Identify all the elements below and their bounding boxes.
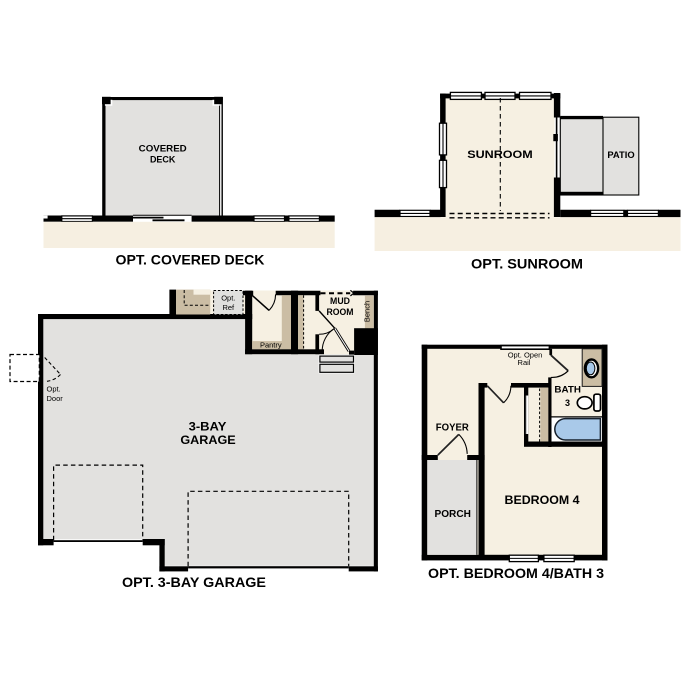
svg-text:GARAGE: GARAGE: [180, 433, 235, 447]
svg-text:PATIO: PATIO: [607, 150, 634, 160]
svg-text:SUNROOM: SUNROOM: [467, 149, 533, 161]
svg-text:OPT. BEDROOM 4/BATH 3: OPT. BEDROOM 4/BATH 3: [428, 565, 604, 581]
svg-text:Ref: Ref: [222, 303, 235, 312]
svg-text:Pantry: Pantry: [260, 341, 282, 350]
svg-text:OPT. COVERED DECK: OPT. COVERED DECK: [116, 251, 265, 267]
svg-text:COVERED: COVERED: [139, 143, 187, 154]
svg-text:Door: Door: [47, 394, 64, 403]
svg-text:FOYER: FOYER: [436, 421, 469, 433]
svg-text:BEDROOM 4: BEDROOM 4: [505, 493, 580, 507]
svg-text:OPT. 3-BAY GARAGE: OPT. 3-BAY GARAGE: [122, 574, 266, 590]
svg-text:MUD: MUD: [330, 296, 350, 306]
svg-text:DECK: DECK: [150, 153, 176, 164]
svg-text:BATH: BATH: [554, 385, 581, 395]
svg-text:Bench: Bench: [363, 301, 372, 322]
svg-text:3-BAY: 3-BAY: [189, 419, 227, 433]
svg-text:Opt.: Opt.: [47, 385, 61, 394]
svg-text:ROOM: ROOM: [327, 307, 354, 317]
svg-text:PORCH: PORCH: [435, 508, 471, 520]
svg-text:Rail: Rail: [518, 358, 531, 367]
svg-text:3: 3: [565, 398, 570, 408]
svg-text:Opt.: Opt.: [221, 293, 235, 302]
svg-text:OPT. SUNROOM: OPT. SUNROOM: [471, 256, 583, 272]
